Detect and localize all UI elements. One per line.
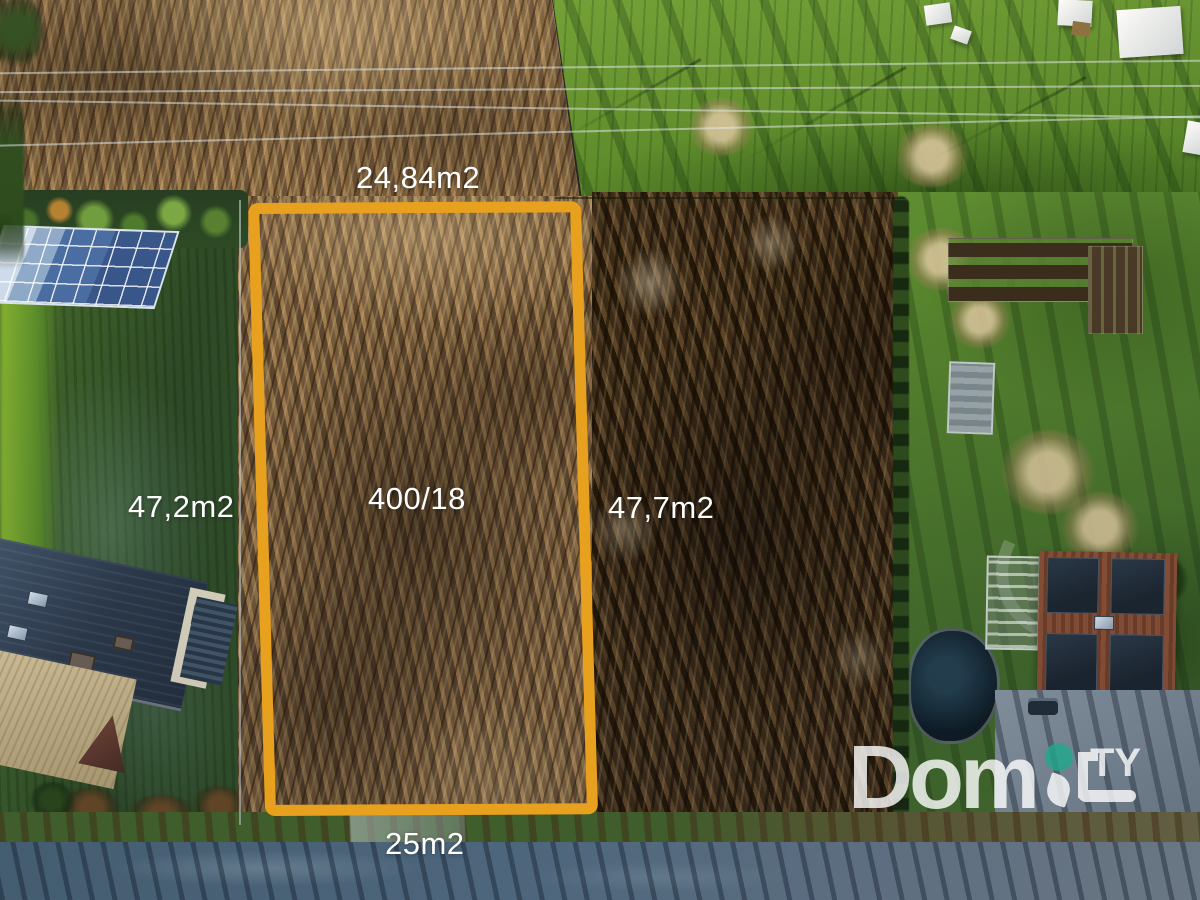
solar-panel [1110,558,1165,615]
solar-panel [1046,557,1099,614]
fence-line [239,200,241,825]
logo-teal-dot-icon [1045,743,1073,771]
fence-line [555,197,905,199]
skylight [1094,616,1114,630]
solar-panel [1109,634,1164,693]
aerial-property-photo: 24,84m2 47,2m2 400/18 47,7m2 25m2 Dom TY [0,0,1200,900]
plot-dimension-right: 47,7m2 [608,492,714,523]
logo-comma-icon [1043,772,1074,808]
logo-text-dom: Dom [848,733,1036,823]
bare-tree [893,125,971,187]
pergola [985,556,1041,651]
white-hive-box [924,2,953,25]
ground-solar-panel-array [0,225,180,309]
white-shed [1116,6,1183,58]
house-rooftop-solar [1037,551,1178,703]
plot-dimension-top: 24,84m2 [356,162,480,193]
skylight [27,590,49,608]
plot-dimension-left: 47,2m2 [128,491,234,522]
skylight [6,624,28,642]
logo-frame-bottom-icon [1078,790,1136,802]
vegetable-beds [1088,246,1143,334]
chimney [112,634,134,652]
domty-watermark-logo: Dom TY [848,733,1158,833]
edge-hedge [0,70,24,290]
plot-parcel-number: 400/18 [368,483,466,514]
plot-dimension-bottom: 25m2 [385,828,465,859]
logo-text-ty: TY [1090,743,1141,783]
wood-pallet [1071,21,1091,37]
solar-panel [1045,633,1098,692]
asphalt-road [0,842,1200,900]
greenhouse [947,361,995,435]
green-meadow [540,0,1200,205]
parked-car [1028,698,1058,715]
